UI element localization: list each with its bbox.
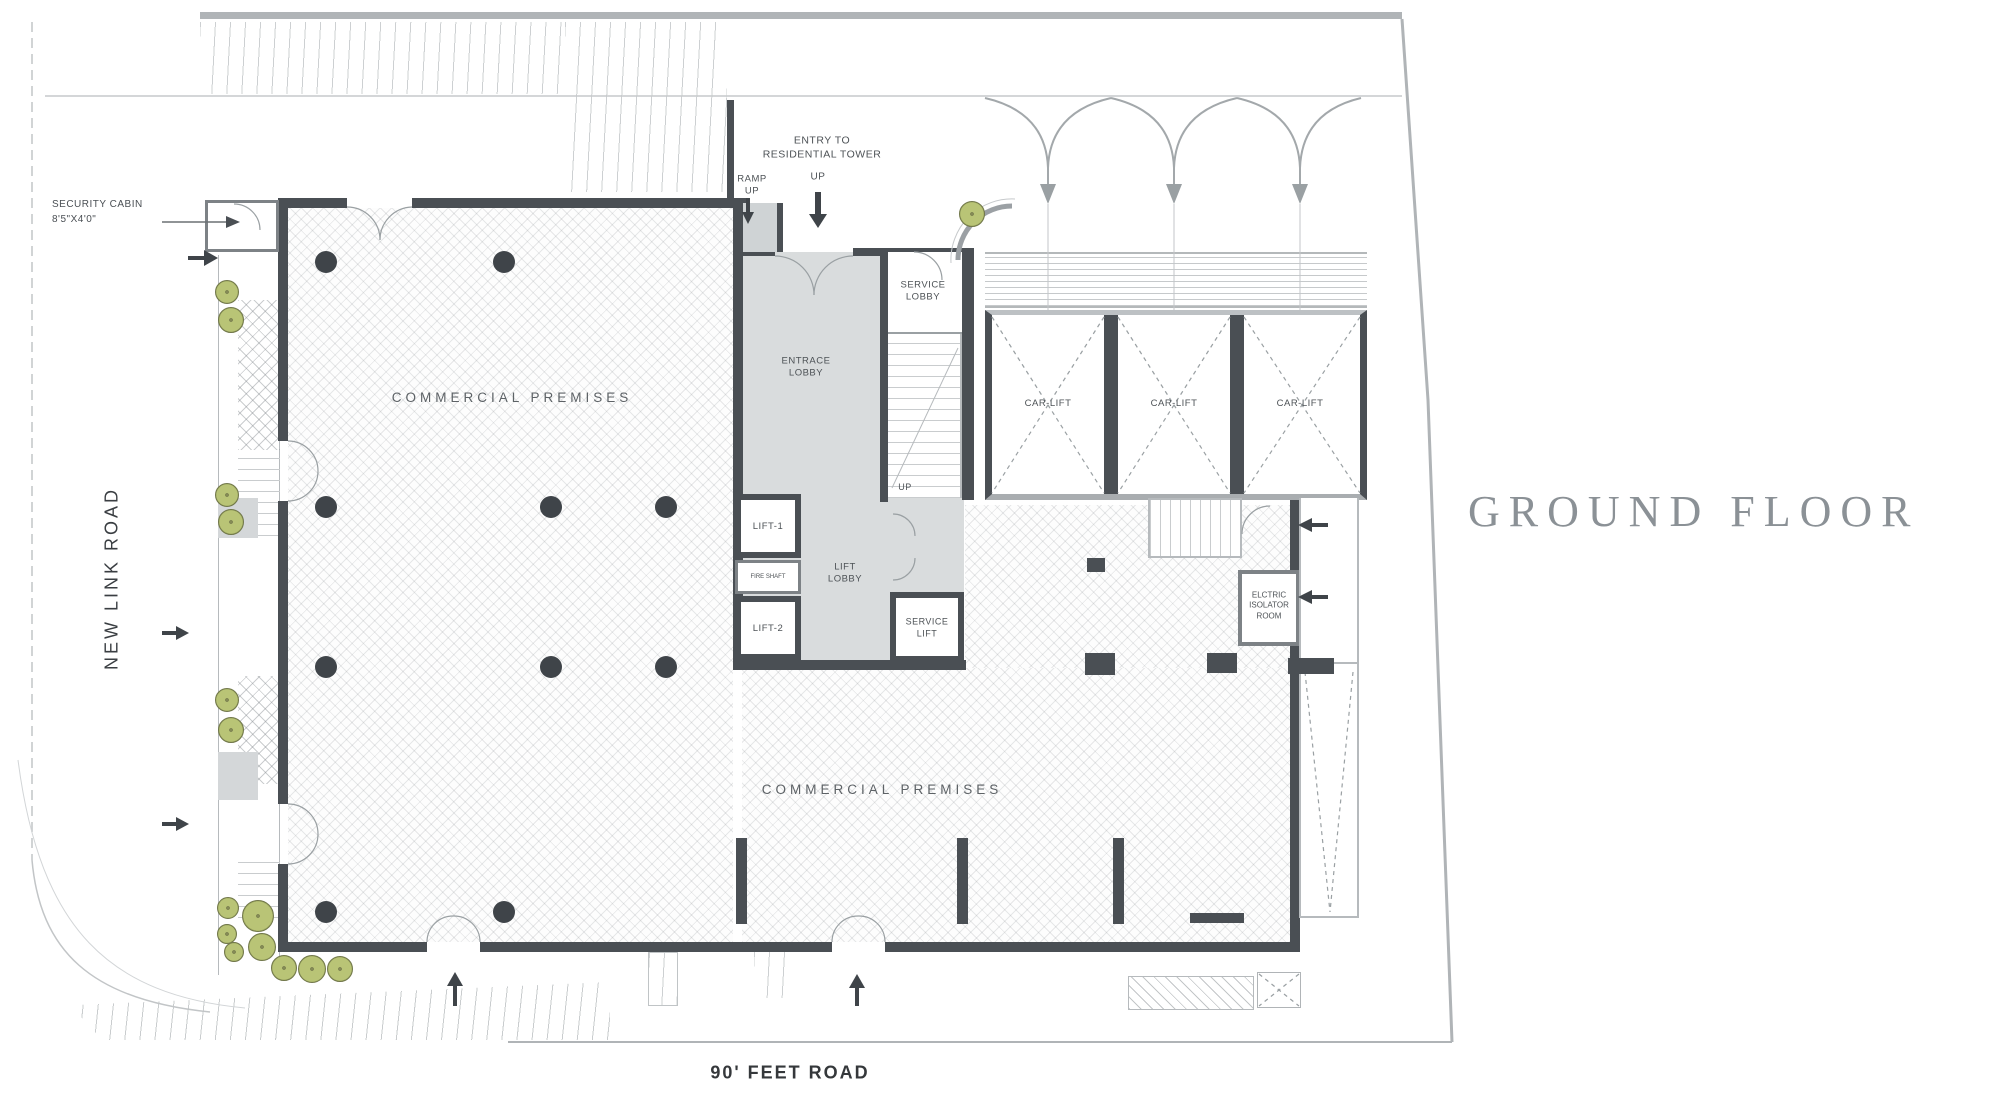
column [315, 251, 337, 273]
tree [224, 942, 244, 962]
entrance-lobby-label: ENTRACE LOBBY [782, 356, 831, 381]
column-square [957, 838, 968, 924]
electric-room-label: ELCTRIC ISOLATOR ROOM [1249, 590, 1289, 621]
lift-2-label: LIFT-2 [753, 623, 783, 635]
commercial-upper-label: COMMERCIAL PREMISES [392, 389, 633, 407]
floor-plan: SECURITY CABIN 8'5"X4'0" ENTRY TO RESIDE… [0, 0, 2008, 1116]
column-square [1288, 658, 1334, 674]
car-lift-2-label: CAR-LIFT [1151, 398, 1198, 410]
tree [217, 924, 237, 944]
lift-1-label: LIFT-1 [753, 521, 783, 533]
commercial-lower-label: COMMERCIAL PREMISES [762, 781, 1003, 799]
tree [218, 717, 244, 743]
tree [271, 955, 297, 981]
tree [218, 509, 244, 535]
fire-shaft-label: FIRE SHAFT [750, 574, 785, 582]
column [315, 901, 337, 923]
column-square [1207, 653, 1237, 673]
security-cabin-label: SECURITY CABIN 8'5"X4'0" [52, 197, 143, 227]
plan-linework [0, 0, 2008, 1116]
tree [215, 483, 239, 507]
sheet-title: GROUND FLOOR [1468, 486, 1919, 537]
tree [217, 897, 239, 919]
column [655, 656, 677, 678]
column-square [1113, 838, 1124, 924]
column [655, 496, 677, 518]
tree [248, 933, 276, 961]
tree [327, 956, 353, 982]
ramp-up-label: RAMP UP [737, 174, 766, 199]
tree [215, 688, 239, 712]
entry-label: ENTRY TO RESIDENTIAL TOWER [763, 134, 882, 161]
up-top-label: UP [811, 171, 826, 184]
column [493, 251, 515, 273]
left-road-label: NEW LINK ROAD [102, 449, 123, 709]
tree [215, 280, 239, 304]
service-lift-label: SERVICE LIFT [906, 616, 949, 639]
car-lift-3-label: CAR-LIFT [1277, 398, 1324, 410]
bottom-road-label: 90' FEET ROAD [710, 1063, 869, 1084]
column-square [1087, 558, 1105, 572]
driveway-arches [985, 98, 1361, 184]
tree [298, 955, 326, 983]
column [315, 656, 337, 678]
tree [218, 307, 244, 333]
column [315, 496, 337, 518]
column [493, 901, 515, 923]
column-square [736, 838, 747, 924]
lift-lobby-label: LIFT LOBBY [828, 562, 862, 587]
up-stair-label: UP [898, 482, 912, 494]
column-square [1085, 653, 1115, 675]
column-square [1190, 913, 1244, 923]
tree [242, 900, 274, 932]
car-lift-1-label: CAR-LIFT [1025, 398, 1072, 410]
service-lobby-label: SERVICE LOBBY [900, 280, 945, 305]
column [540, 656, 562, 678]
column [540, 496, 562, 518]
tree [959, 201, 985, 227]
